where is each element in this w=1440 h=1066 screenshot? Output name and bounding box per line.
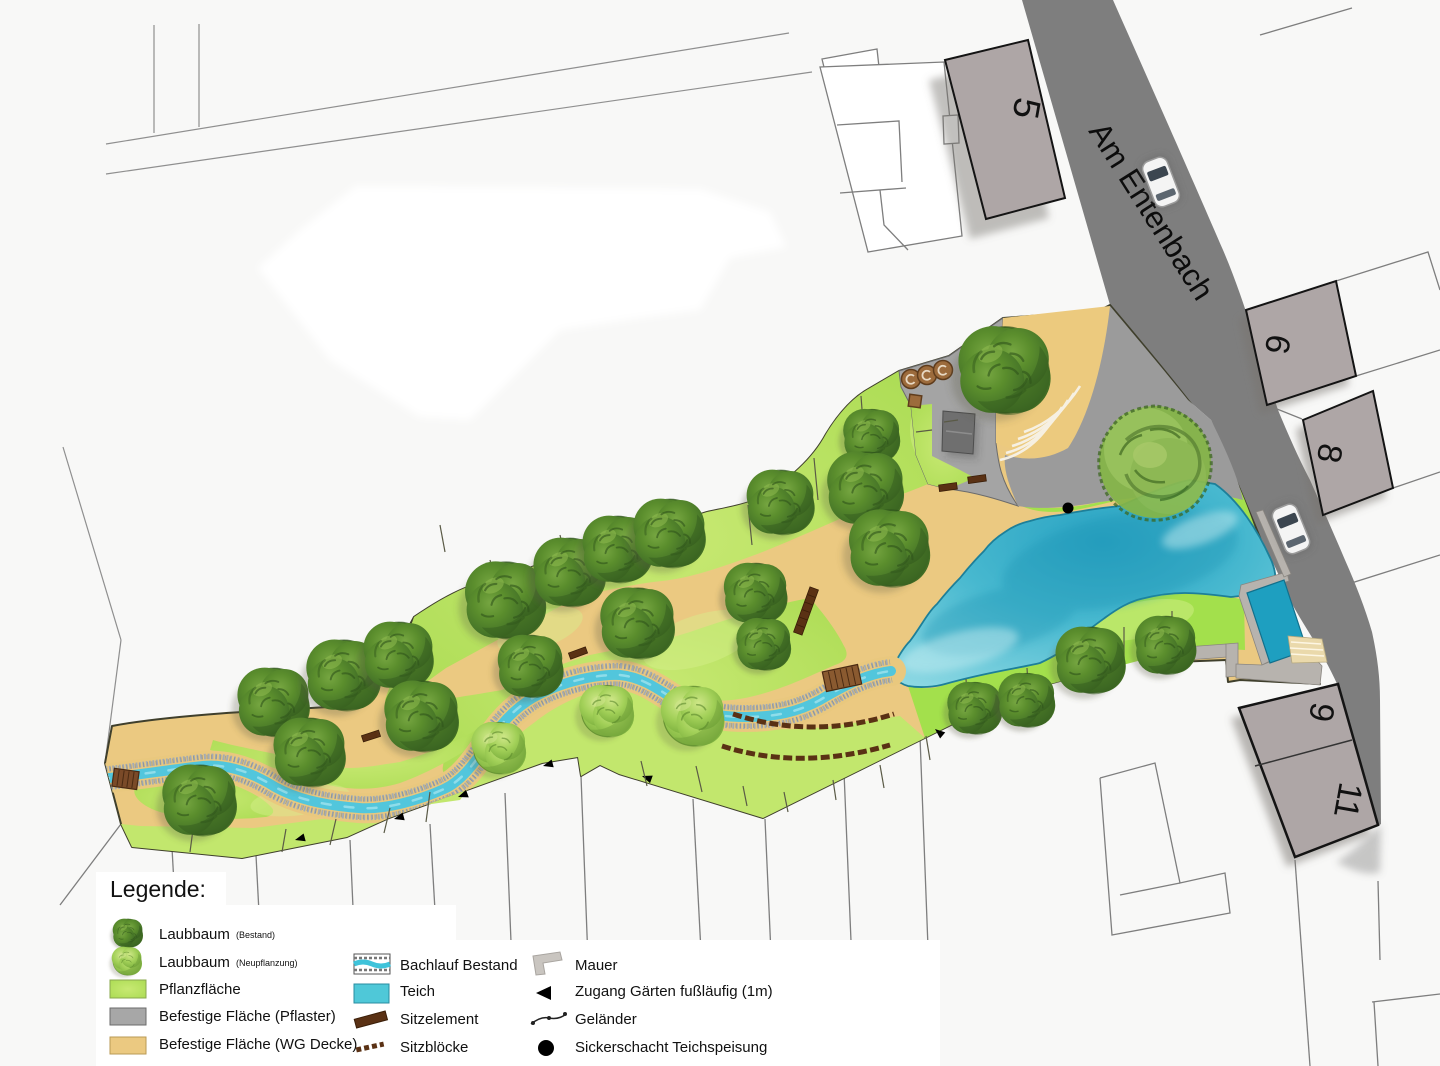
svg-text:Legende:: Legende: — [110, 876, 206, 902]
svg-text:Zugang Gärten fußläufig (1m): Zugang Gärten fußläufig (1m) — [575, 983, 773, 1000]
svg-text:Teich: Teich — [400, 983, 435, 1000]
svg-text:Geländer: Geländer — [575, 1011, 637, 1028]
svg-text:Mauer: Mauer — [575, 957, 618, 974]
svg-text:(Bestand): (Bestand) — [236, 930, 275, 940]
svg-text:(Neupflanzung): (Neupflanzung) — [236, 958, 298, 968]
svg-text:Pflanzfläche: Pflanzfläche — [159, 981, 241, 998]
svg-text:Befestige Fläche (WG Decke): Befestige Fläche (WG Decke) — [159, 1036, 357, 1053]
svg-text:11: 11 — [1326, 780, 1370, 821]
svg-text:Laubbaum: Laubbaum — [159, 954, 230, 971]
svg-text:Sickerschacht Teichspeisung: Sickerschacht Teichspeisung — [575, 1039, 767, 1056]
svg-text:Bachlauf Bestand: Bachlauf Bestand — [400, 957, 518, 974]
svg-text:Sitzelement: Sitzelement — [400, 1011, 479, 1028]
svg-text:Laubbaum: Laubbaum — [159, 926, 230, 943]
svg-text:Sitzblöcke: Sitzblöcke — [400, 1039, 468, 1056]
svg-text:Befestige Fläche (Pflaster): Befestige Fläche (Pflaster) — [159, 1008, 336, 1025]
